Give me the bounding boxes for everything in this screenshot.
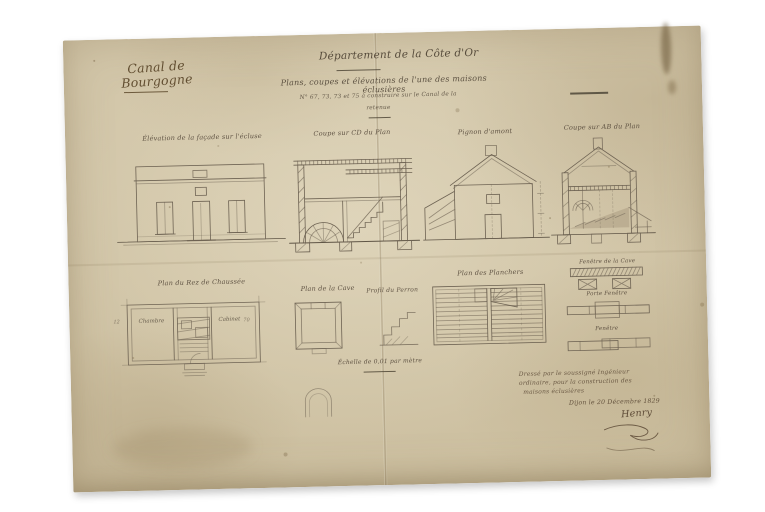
elevation-facade-drawing [109, 143, 292, 259]
certification-dateline: Dijon le 20 Décembre 1829 [549, 397, 679, 407]
paper-stain [668, 80, 676, 94]
subtitle-underline [369, 117, 391, 119]
series-title-underline [124, 91, 168, 93]
coupe-cd-drawing [281, 136, 424, 261]
certification-line2: ordinaire, pour la construction des [519, 377, 694, 388]
scanned-drawing-photo: Canal de Bourgogne Département de la Côt… [0, 0, 765, 512]
room-label-left: Chambre [131, 318, 171, 325]
detail-label-fenetre: Fenêtre [574, 325, 640, 333]
paper-stain [112, 426, 253, 469]
paper-speckles [93, 60, 95, 62]
sheet-subtitle2: retenue [358, 105, 398, 113]
signature-flourish [596, 420, 667, 456]
arch-sketch [295, 382, 342, 421]
detail-label-porte: Porte Fenêtre [569, 290, 645, 298]
drawing-sheet: Canal de Bourgogne Département de la Côt… [63, 26, 711, 493]
stray-ink-line [570, 92, 608, 95]
detail-fenetre-drawing [566, 334, 654, 356]
pignon-amont-drawing [417, 133, 555, 258]
scale-note-underline [364, 371, 396, 373]
department-title: Département de la Côte d'Or [311, 47, 486, 63]
ink-stain [661, 22, 672, 74]
plan-rdc-drawing [111, 286, 278, 385]
detail-porte-drawing [565, 299, 653, 321]
detail-cave-window-drawing [568, 265, 649, 293]
figure-label-elevation-facade: Élévation de la façade sur l'écluse [117, 132, 287, 143]
dimension-left: 12 [113, 319, 120, 325]
figure-label-profil-perron: Profil du Perron [355, 287, 430, 296]
scale-note: Échelle de 0,01 par mètre [322, 358, 437, 368]
coupe-ab-drawing [541, 131, 659, 256]
plan-planchers-drawing [424, 276, 554, 355]
dimension-right: 70 [243, 317, 250, 323]
series-title: Canal de Bourgogne [91, 56, 223, 93]
profil-perron-drawing [377, 304, 420, 350]
certification-line3: maisons éclusières [523, 387, 643, 397]
plan-cave-drawing [285, 294, 356, 358]
